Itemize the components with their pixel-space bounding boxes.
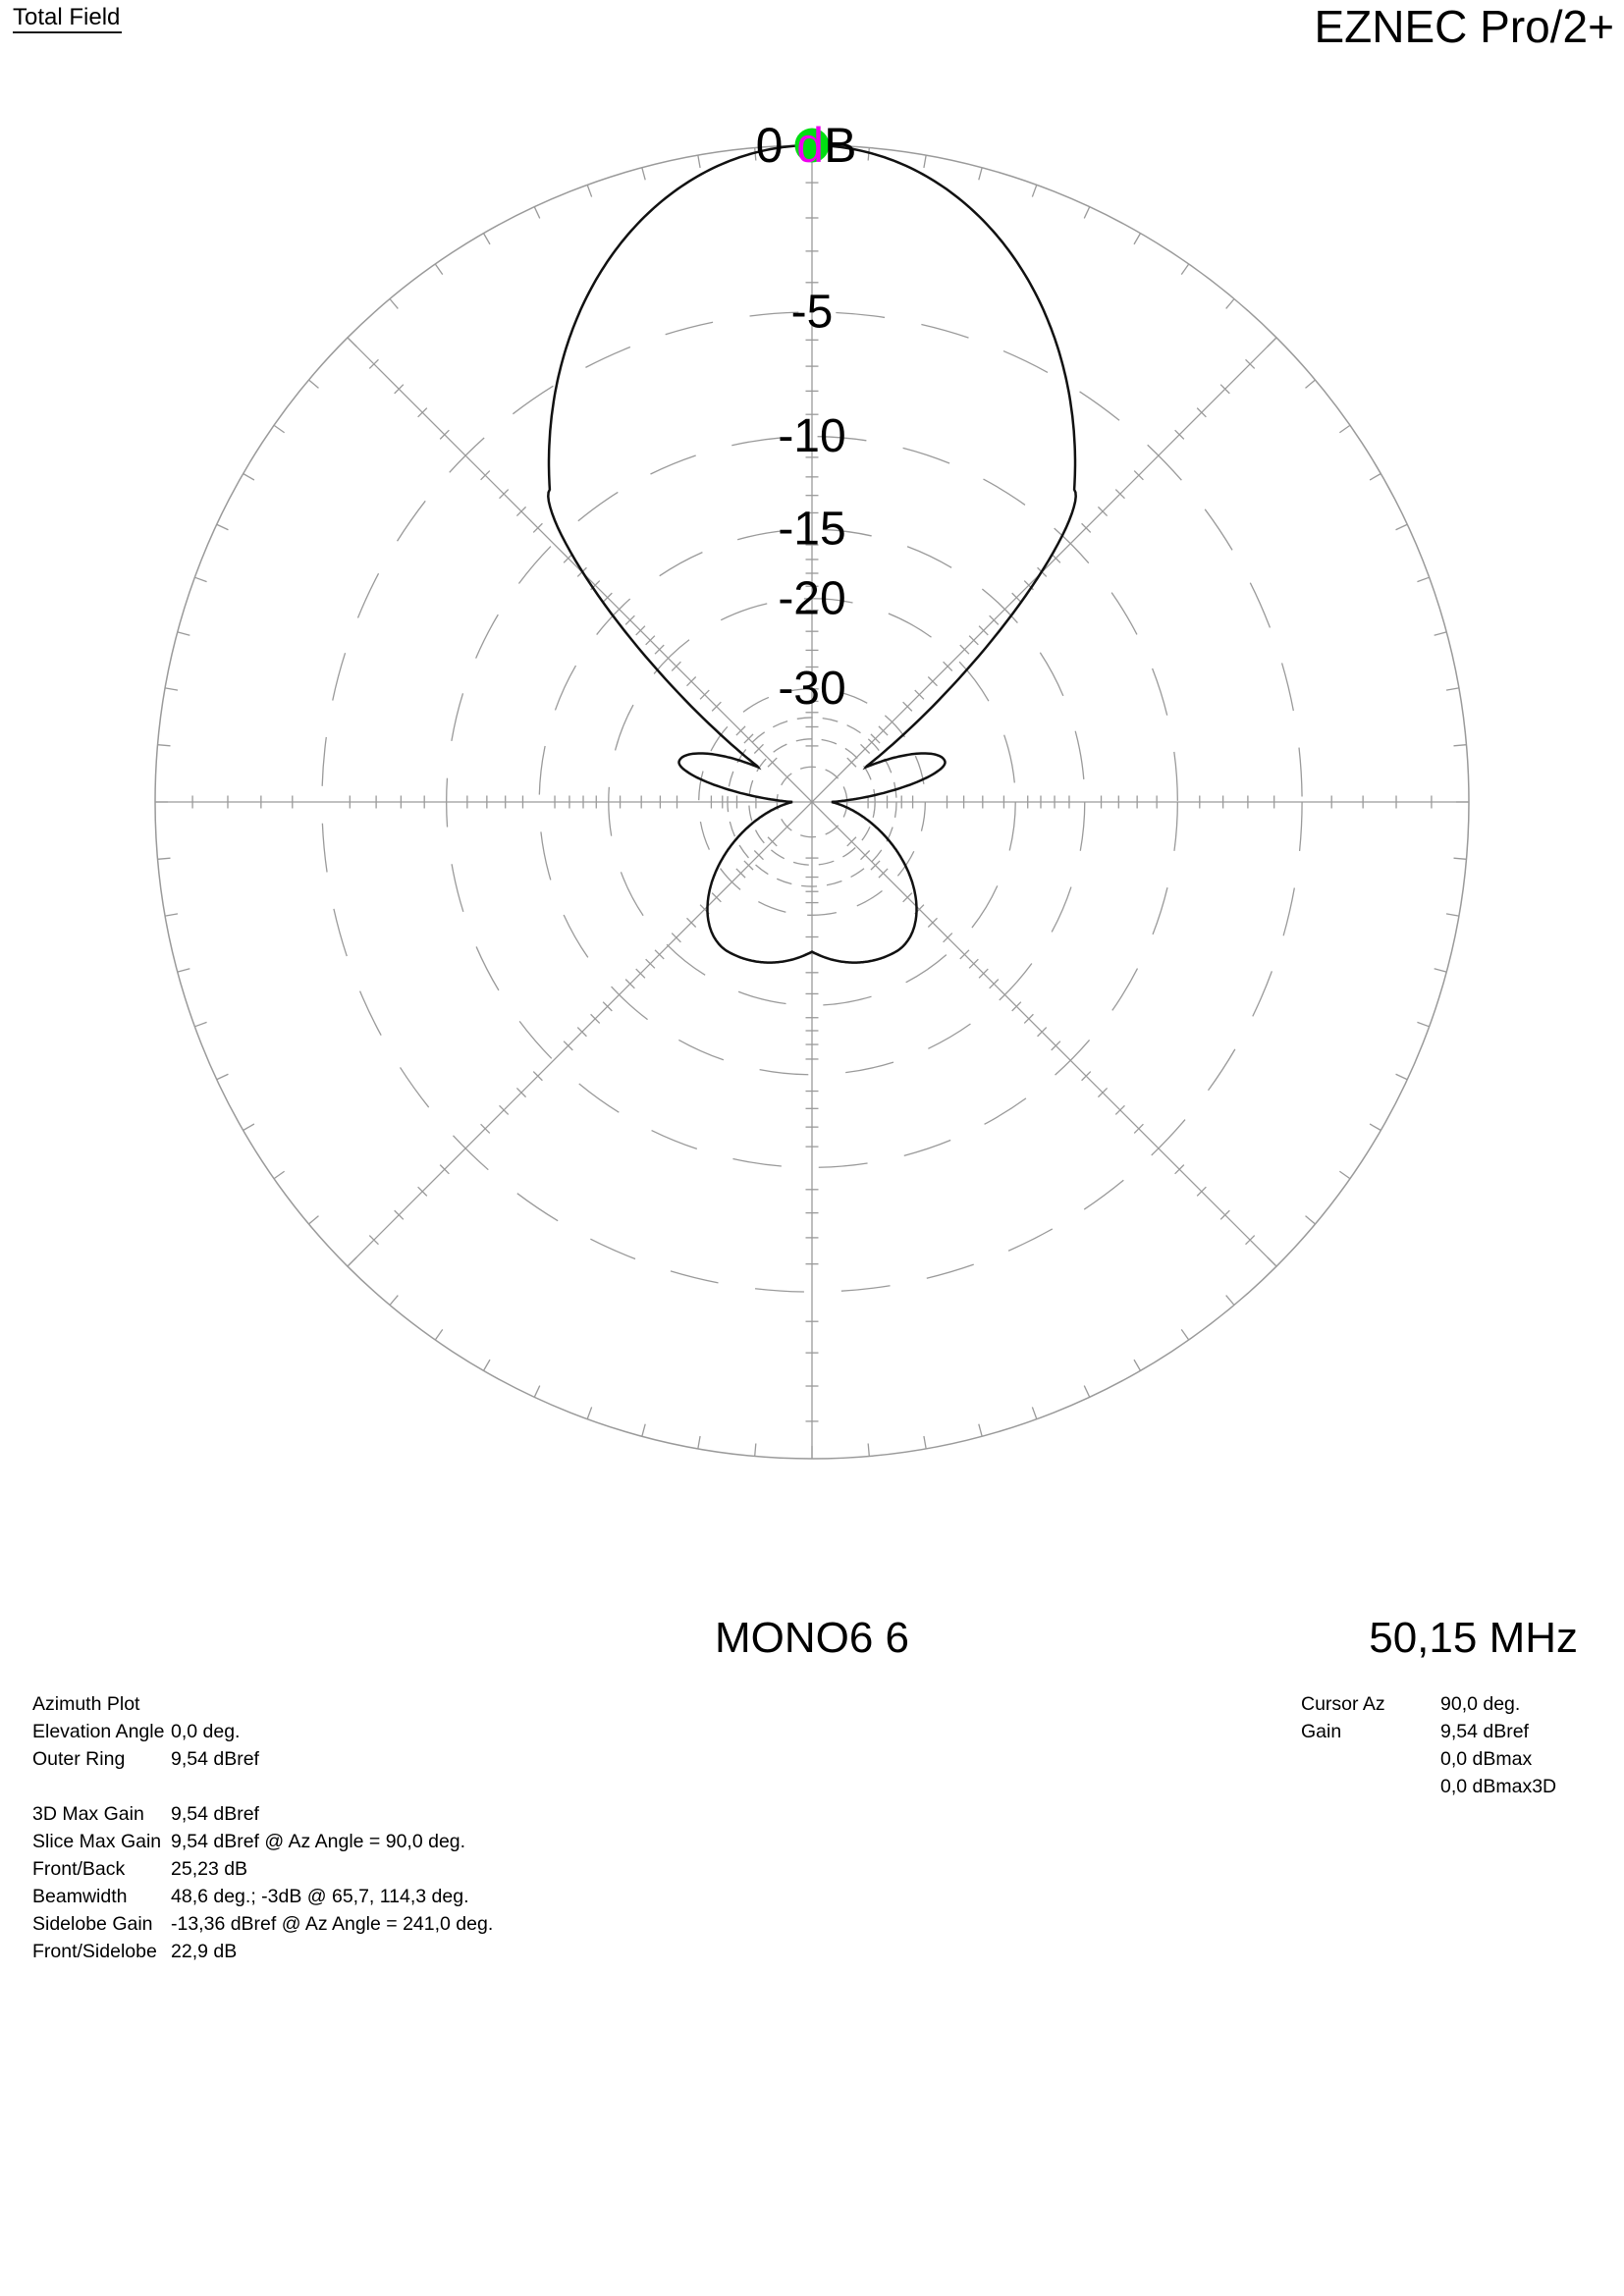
azimuth-tick [274,425,285,432]
azimuth-tick [1181,264,1188,275]
info-row-cursor-dbmax: 0,0 dBmax [1301,1745,1615,1773]
azimuth-tick [1454,745,1467,746]
azimuth-tick [868,1444,869,1457]
info-value: 22,9 dB [171,1938,641,1965]
info-value: 9,54 dBref @ Az Angle = 90,0 deg. [171,1828,641,1855]
azimuth-tick [1306,1216,1316,1224]
info-label: Outer Ring [32,1745,171,1773]
info-row-elevation-angle: Elevation Angle 0,0 deg. [32,1718,641,1745]
ring-label: -20 [778,572,845,624]
info-value: 0,0 dBmax3D [1440,1773,1615,1800]
info-row-3d-max-gain: 3D Max Gain 9,54 dBref [32,1800,641,1828]
azimuth-tick [1226,299,1234,309]
azimuth-tick [194,577,206,581]
azimuth-tick [435,264,442,275]
frequency-readout: 50,15 MHz [1369,1615,1578,1662]
azimuth-tick [244,1124,254,1131]
azimuth-tick [165,914,178,916]
azimuth-tick [1396,1074,1408,1079]
azimuth-tick [158,858,171,859]
azimuth-tick [1446,688,1459,690]
azimuth-tick [165,688,178,690]
info-row-cursor-gain: Gain 9,54 dBref [1301,1718,1615,1745]
ring-label: -15 [778,504,845,556]
azimuth-tick [217,524,229,529]
azimuth-tick [979,168,982,181]
azimuth-tick [484,1360,491,1370]
info-label: Gain [1301,1718,1440,1745]
polar-grid [155,145,1469,1459]
azimuth-tick [178,969,190,972]
azimuth-tick [217,1074,229,1079]
ring-label: -30 [778,663,845,715]
azimuth-tick [924,155,926,168]
azimuth-tick [1417,1022,1429,1026]
azimuth-tick [1339,425,1350,432]
azimuth-polar-plot[interactable]: -5-10-15-20-300 dB [0,0,1624,1551]
ring-label: -10 [778,410,845,462]
azimuth-tick [1446,914,1459,916]
azimuth-tick [587,1407,591,1418]
azimuth-tick [158,745,171,746]
info-row-cursor-dbmax3d: 0,0 dBmax3D [1301,1773,1615,1800]
azimuth-tick [244,474,254,481]
info-label: Cursor Az [1301,1690,1440,1718]
azimuth-tick [309,1216,319,1224]
info-label: Beamwidth [32,1883,171,1910]
info-row-blank [32,1773,641,1800]
azimuth-tick [698,1436,700,1449]
info-row-beamwidth: Beamwidth 48,6 deg.; -3dB @ 65,7, 114,3 … [32,1883,641,1910]
azimuth-tick [390,299,398,309]
info-row-outer-ring: Outer Ring 9,54 dBref [32,1745,641,1773]
info-row-cursor-az: Cursor Az 90,0 deg. [1301,1690,1615,1718]
plot-info-panel: Azimuth Plot Elevation Angle 0,0 deg. Ou… [32,1690,641,1965]
azimuth-tick [1032,1407,1036,1418]
polar-plot-canvas[interactable]: -5-10-15-20-300 dB [0,0,1624,1551]
info-label: Front/Back [32,1855,171,1883]
info-label: Front/Sidelobe [32,1938,171,1965]
azimuth-tick [1396,524,1408,529]
model-name: MONO6 6 [715,1615,909,1662]
info-value: 9,54 dBref [171,1745,641,1773]
azimuth-tick [435,1329,442,1340]
info-label: Slice Max Gain [32,1828,171,1855]
cursor-info-panel: Cursor Az 90,0 deg. Gain 9,54 dBref 0,0 … [1301,1690,1615,1800]
azimuth-tick [1084,1386,1089,1398]
azimuth-tick [194,1022,206,1026]
azimuth-tick [1306,380,1316,388]
info-label: Sidelobe Gain [32,1910,171,1938]
info-label [1301,1773,1440,1800]
ring-label: -5 [791,286,834,338]
info-label [1301,1745,1440,1773]
azimuth-tick [642,168,645,181]
info-row-front-sidelobe: Front/Sidelobe 22,9 dB [32,1938,641,1965]
info-value: 9,54 dBref [1440,1718,1615,1745]
info-value: 9,54 dBref [171,1800,641,1828]
info-value: 48,6 deg.; -3dB @ 65,7, 114,3 deg. [171,1883,641,1910]
azimuth-tick [1226,1296,1234,1306]
ring-labels: -5-10-15-20-300 dB [756,118,857,715]
info-value [171,1773,641,1800]
info-label [32,1773,171,1800]
azimuth-tick [274,1171,285,1178]
info-row-slice-max-gain: Slice Max Gain 9,54 dBref @ Az Angle = 9… [32,1828,641,1855]
azimuth-tick [1370,474,1380,481]
azimuth-tick [1417,577,1429,581]
azimuth-tick [309,380,319,388]
azimuth-tick [534,207,539,219]
info-row-front-back: Front/Back 25,23 dB [32,1855,641,1883]
azimuth-tick [178,632,190,635]
azimuth-tick [1084,207,1089,219]
azimuth-tick [924,1436,926,1449]
eznec-plot-window: { "window": { "field_type_label": "Total… [0,0,1624,2296]
azimuth-tick [642,1424,645,1437]
info-value: 0,0 dBmax [1440,1745,1615,1773]
plot-type-title: Azimuth Plot [32,1690,641,1718]
info-value: -13,36 dBref @ Az Angle = 241,0 deg. [171,1910,641,1938]
azimuth-tick [1134,1360,1141,1370]
azimuth-tick [390,1296,398,1306]
azimuth-tick [868,148,869,161]
outer-ring-peak-label: 0 dB [756,118,857,173]
azimuth-tick [1435,632,1447,635]
azimuth-tick [755,1444,756,1457]
azimuth-tick [698,155,700,168]
azimuth-tick [1435,969,1447,972]
azimuth-tick [979,1424,982,1437]
azimuth-tick [484,234,491,244]
info-value: 90,0 deg. [1440,1690,1615,1718]
azimuth-tick [1454,858,1467,859]
azimuth-tick [1032,185,1036,196]
azimuth-tick [534,1386,539,1398]
info-label: Elevation Angle [32,1718,171,1745]
azimuth-tick [1181,1329,1188,1340]
info-row-sidelobe-gain: Sidelobe Gain -13,36 dBref @ Az Angle = … [32,1910,641,1938]
azimuth-tick [1134,234,1141,244]
azimuth-tick [587,185,591,196]
info-value: 0,0 deg. [171,1718,641,1745]
info-value: 25,23 dB [171,1855,641,1883]
info-label: 3D Max Gain [32,1800,171,1828]
azimuth-tick [1339,1171,1350,1178]
azimuth-tick [1370,1124,1380,1131]
